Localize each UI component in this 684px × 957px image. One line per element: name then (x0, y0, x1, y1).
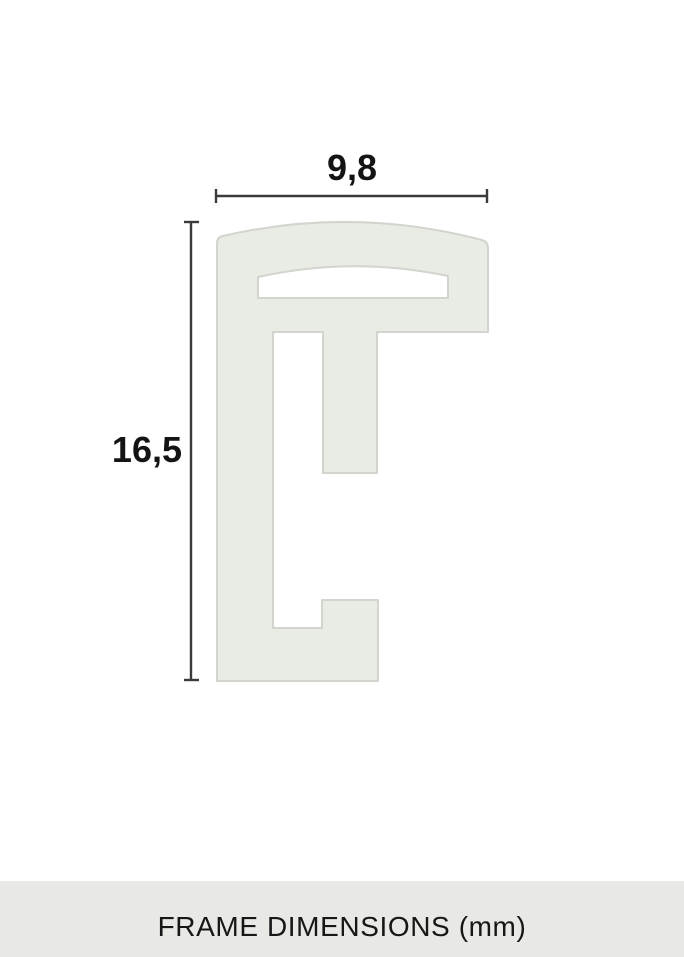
height-dimension-label: 16,5 (112, 429, 182, 470)
caption-bar: FRAME DIMENSIONS (mm) (0, 881, 684, 957)
profile-drawing: 9,8 16,5 (0, 0, 684, 881)
frame-profile-cross-section (217, 222, 488, 681)
width-dimension-label: 9,8 (327, 147, 377, 188)
caption-text: FRAME DIMENSIONS (mm) (158, 911, 527, 943)
frame-dimension-diagram: 9,8 16,5 FRAME DIMENSIONS (mm) (0, 0, 684, 957)
height-dimension-line (184, 222, 199, 680)
width-dimension-line (216, 189, 487, 203)
